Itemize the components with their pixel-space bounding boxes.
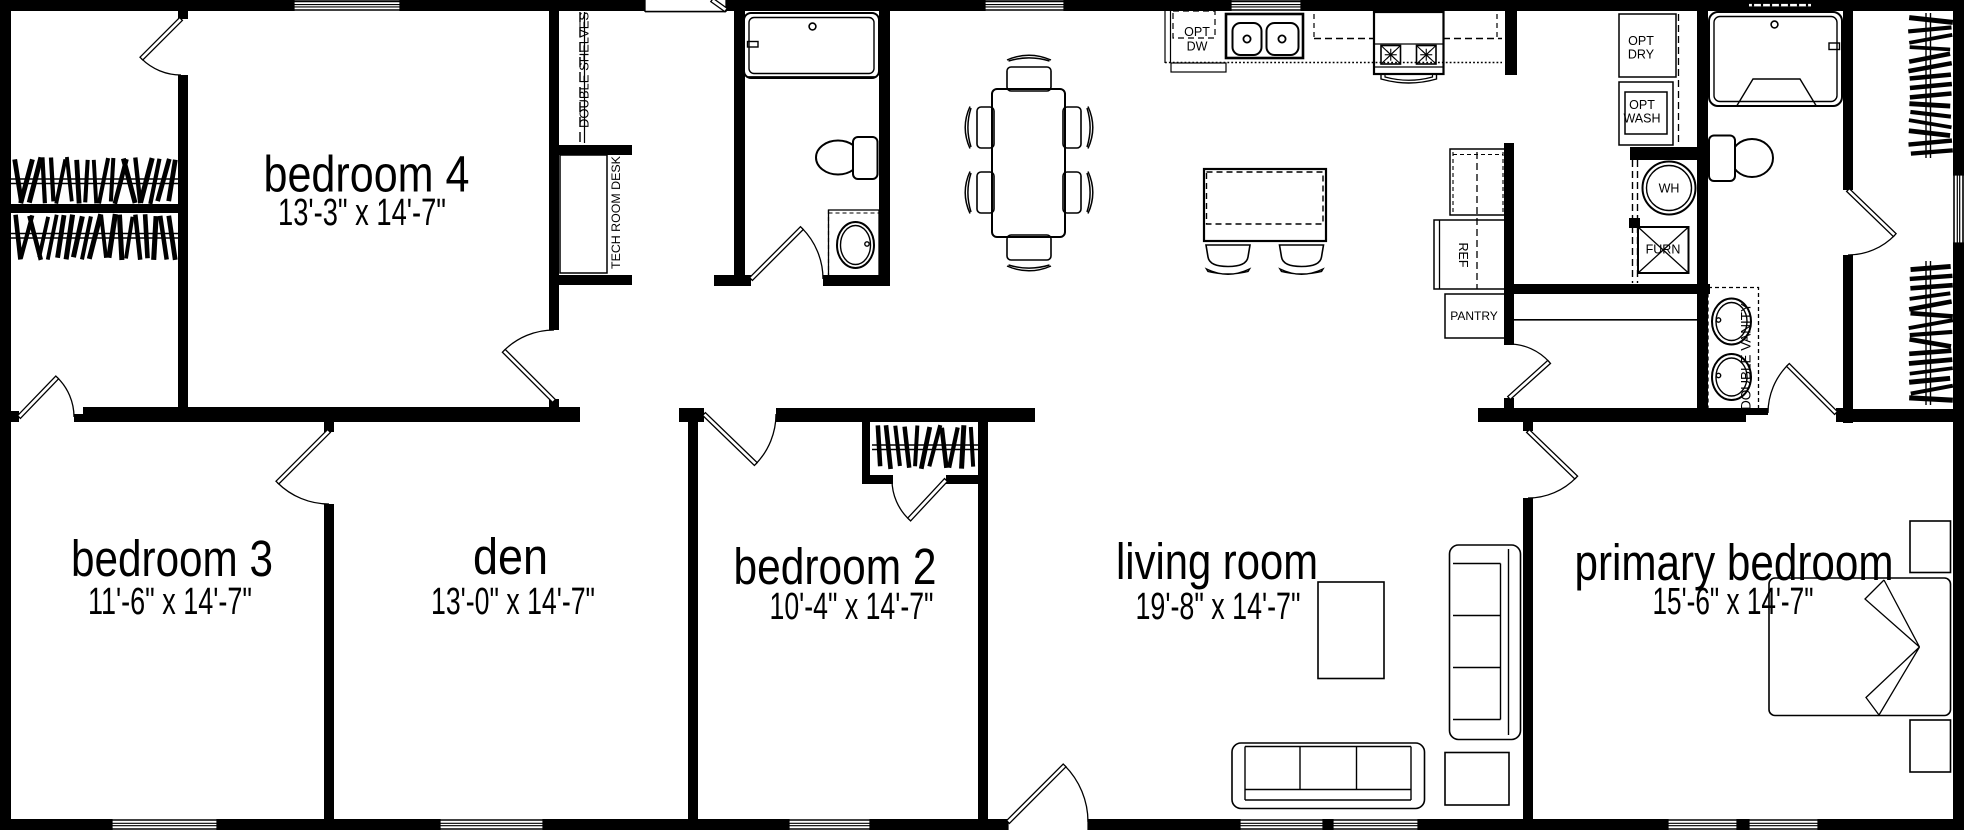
svg-text:DOUBLE SHELVES: DOUBLE SHELVES xyxy=(577,12,592,128)
svg-text:DW: DW xyxy=(1187,40,1208,54)
svg-text:den: den xyxy=(473,528,548,585)
svg-text:FURN: FURN xyxy=(1646,243,1681,257)
svg-text:WASH: WASH xyxy=(1623,112,1660,126)
svg-text:DOUBLE VANITY: DOUBLE VANITY xyxy=(1739,303,1754,410)
svg-text:REF: REF xyxy=(1456,243,1470,268)
svg-text:bedroom 3: bedroom 3 xyxy=(71,530,273,587)
svg-text:11'-6" x 14'-7": 11'-6" x 14'-7" xyxy=(88,581,252,623)
svg-text:15'-6" x 14'-7": 15'-6" x 14'-7" xyxy=(1653,581,1814,623)
svg-text:19'-8" x 14'-7": 19'-8" x 14'-7" xyxy=(1136,586,1301,628)
svg-text:OPT: OPT xyxy=(1184,25,1210,39)
svg-text:TECH ROOM DESK: TECH ROOM DESK xyxy=(609,155,623,269)
svg-text:13'-0" x 14'-7": 13'-0" x 14'-7" xyxy=(431,581,595,623)
svg-text:OPT: OPT xyxy=(1629,98,1655,112)
svg-text:OPT: OPT xyxy=(1628,34,1654,48)
svg-text:10'-4" x 14'-7": 10'-4" x 14'-7" xyxy=(770,586,934,628)
svg-text:13'-3" x 14'-7": 13'-3" x 14'-7" xyxy=(278,192,446,234)
svg-text:living room: living room xyxy=(1116,533,1318,590)
svg-text:WH: WH xyxy=(1659,182,1680,196)
svg-text:PANTRY: PANTRY xyxy=(1450,309,1498,323)
svg-text:DRY: DRY xyxy=(1628,48,1655,62)
